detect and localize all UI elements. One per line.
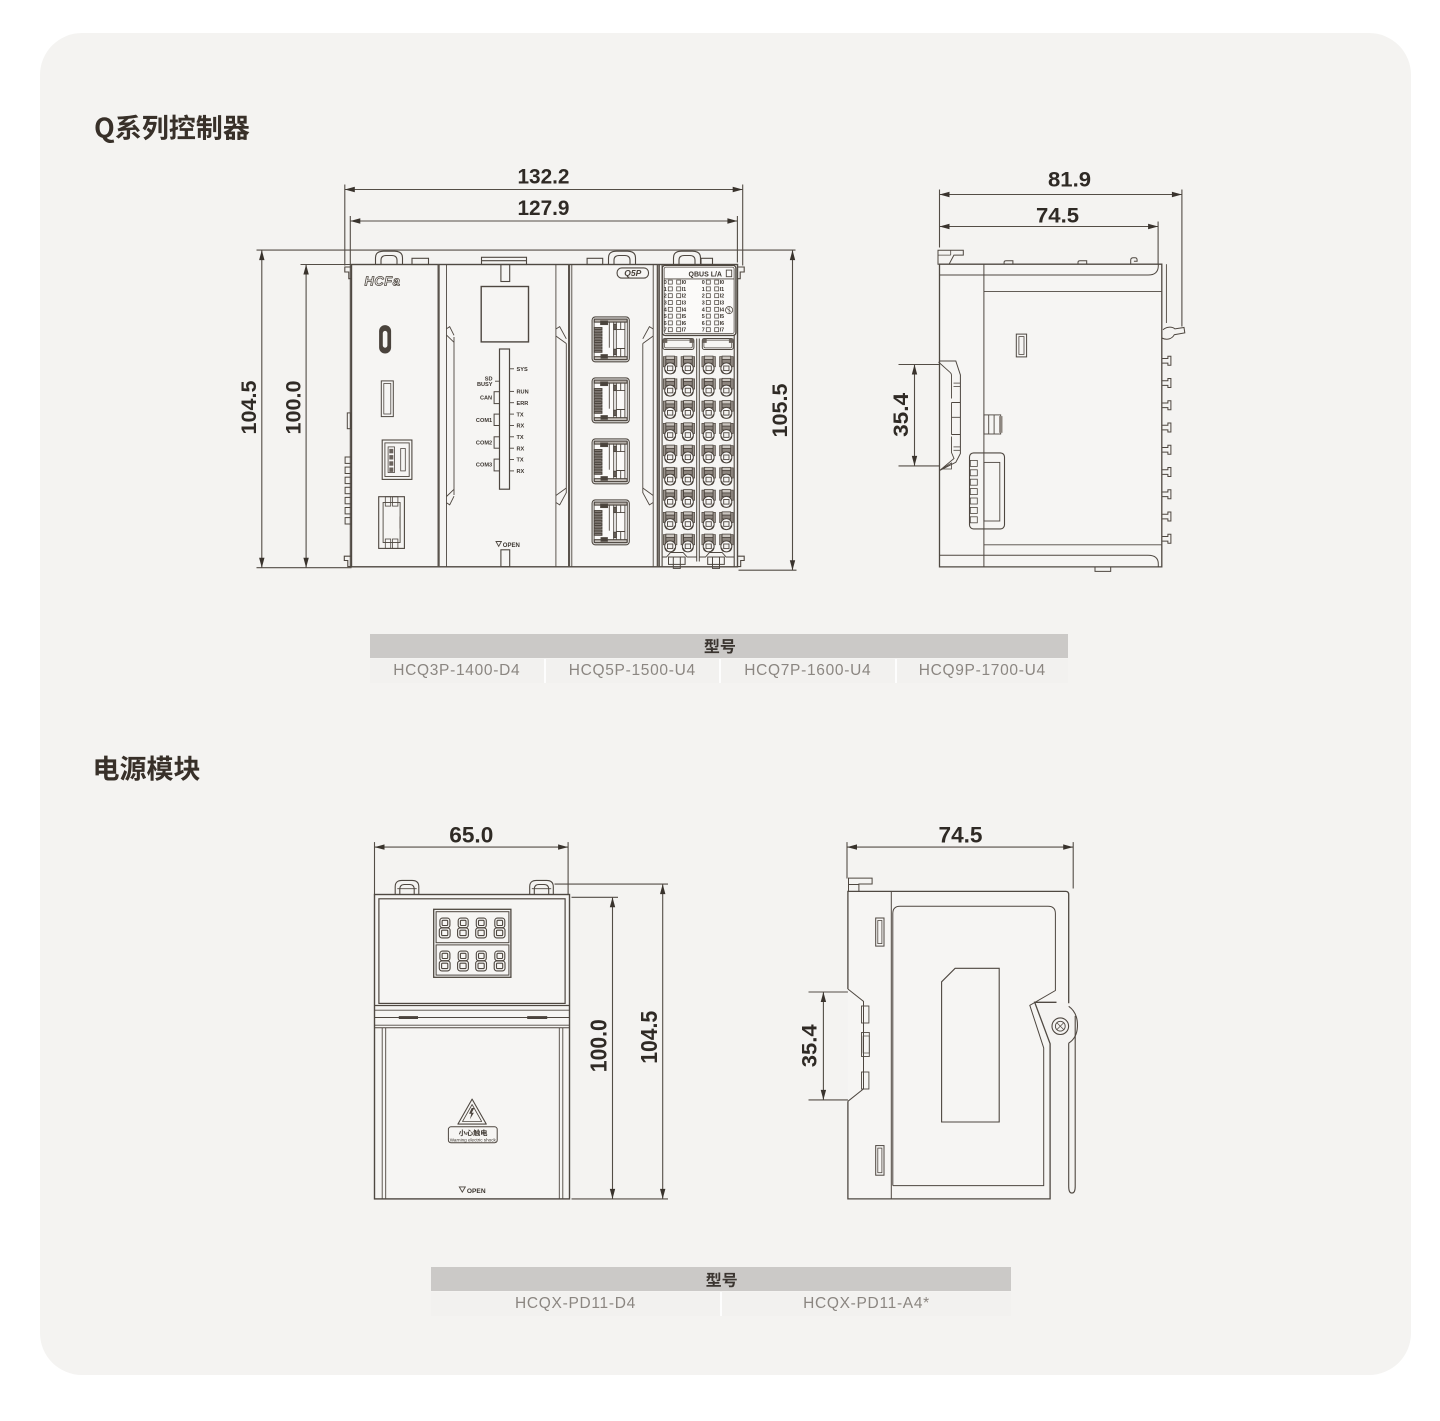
svg-text:65.0: 65.0	[449, 823, 493, 848]
svg-text:I3: I3	[682, 301, 687, 307]
svg-text:5: 5	[664, 314, 667, 320]
svg-text:132.2: 132.2	[518, 166, 570, 189]
svg-text:3: 3	[702, 301, 705, 307]
svg-text:COM3: COM3	[476, 463, 492, 469]
svg-text:I4: I4	[682, 307, 687, 313]
svg-text:RX: RX	[517, 424, 525, 430]
svg-text:CAN: CAN	[480, 396, 492, 402]
svg-text:5: 5	[702, 314, 705, 320]
svg-text:RX: RX	[517, 469, 525, 475]
svg-text:RUN: RUN	[517, 390, 529, 396]
svg-text:BUSY: BUSY	[477, 382, 493, 388]
svg-text:7: 7	[702, 328, 705, 334]
svg-text:1: 1	[702, 287, 705, 293]
svg-text:4: 4	[664, 307, 667, 313]
svg-text:TX: TX	[517, 435, 524, 441]
svg-text:HCFa: HCFa	[365, 274, 401, 289]
svg-text:I2: I2	[682, 294, 687, 300]
svg-text:6: 6	[664, 321, 667, 327]
svg-text:RX: RX	[517, 446, 525, 452]
svg-text:104.5: 104.5	[636, 1011, 662, 1064]
svg-text:I3: I3	[720, 301, 725, 307]
svg-text:OPEN: OPEN	[503, 543, 520, 549]
svg-text:3: 3	[664, 301, 667, 307]
svg-text:I6: I6	[682, 321, 687, 327]
svg-text:I7: I7	[682, 328, 687, 334]
svg-text:QBUS L/A: QBUS L/A	[689, 272, 722, 279]
svg-text:I0: I0	[682, 280, 687, 286]
svg-text:I0: I0	[720, 280, 725, 286]
svg-text:I1: I1	[720, 287, 725, 293]
svg-text:6: 6	[702, 321, 705, 327]
svg-text:100.0: 100.0	[586, 1019, 612, 1072]
svg-text:COM1: COM1	[476, 418, 492, 424]
svg-text:100.0: 100.0	[283, 381, 306, 435]
svg-text:127.9: 127.9	[518, 197, 570, 220]
svg-text:35.4: 35.4	[799, 1024, 822, 1067]
svg-text:2: 2	[664, 294, 667, 300]
svg-text:TX: TX	[517, 412, 524, 418]
svg-text:OPEN: OPEN	[467, 1188, 486, 1195]
svg-text:0: 0	[702, 280, 705, 286]
svg-text:81.9: 81.9	[1048, 169, 1091, 192]
svg-text:I7: I7	[720, 328, 725, 334]
svg-text:2: 2	[702, 294, 705, 300]
svg-text:Warning electric shock: Warning electric shock	[450, 1137, 497, 1142]
svg-text:74.5: 74.5	[939, 823, 983, 848]
svg-text:ERR: ERR	[517, 401, 529, 407]
svg-text:1: 1	[664, 287, 667, 293]
svg-text:I4: I4	[720, 307, 725, 313]
svg-text:I2: I2	[720, 294, 725, 300]
svg-text:7: 7	[664, 328, 667, 334]
svg-text:I5: I5	[682, 314, 687, 320]
svg-text:0: 0	[664, 280, 667, 286]
svg-text:74.5: 74.5	[1036, 205, 1079, 228]
svg-text:I6: I6	[720, 321, 725, 327]
svg-text:Q5P: Q5P	[624, 268, 641, 278]
svg-text:I1: I1	[682, 287, 687, 293]
svg-text:35.4: 35.4	[890, 393, 913, 437]
svg-text:SYS: SYS	[517, 367, 528, 373]
svg-text:105.5: 105.5	[769, 383, 792, 437]
svg-text:I5: I5	[720, 314, 725, 320]
svg-text:COM2: COM2	[476, 440, 492, 446]
svg-text:104.5: 104.5	[238, 380, 261, 434]
svg-text:4: 4	[702, 307, 705, 313]
svg-text:TX: TX	[517, 458, 524, 464]
